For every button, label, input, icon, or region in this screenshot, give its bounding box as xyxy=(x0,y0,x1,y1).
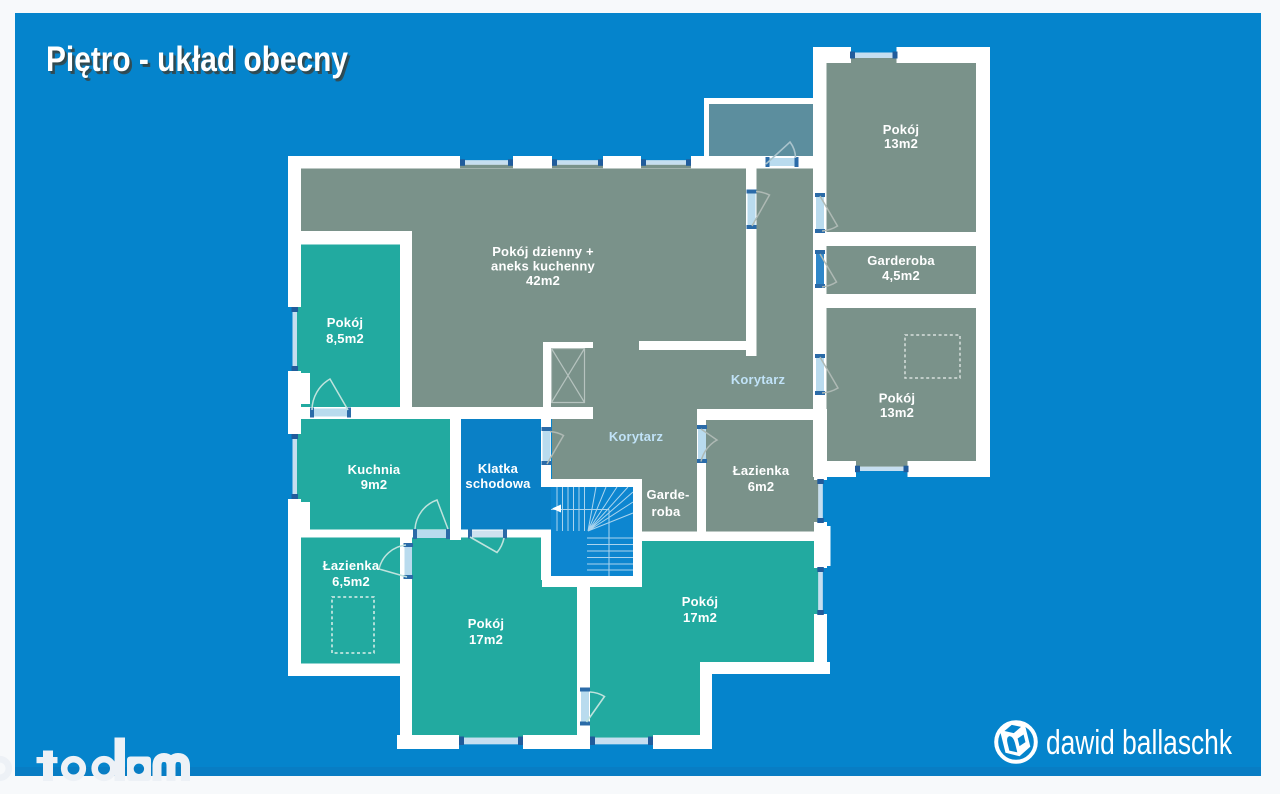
svg-text:schodowa: schodowa xyxy=(465,476,531,491)
svg-text:Pokój: Pokój xyxy=(468,616,504,631)
svg-text:8,5m2: 8,5m2 xyxy=(326,331,364,346)
svg-text:9m2: 9m2 xyxy=(361,477,388,492)
svg-text:13m2: 13m2 xyxy=(884,136,918,151)
svg-text:Łazienka: Łazienka xyxy=(733,463,790,478)
svg-text:aneks kuchenny: aneks kuchenny xyxy=(491,259,596,274)
svg-text:dawid ballaschk: dawid ballaschk xyxy=(1046,724,1233,762)
svg-text:roba: roba xyxy=(652,504,682,519)
svg-text:Piętro - układ obecny: Piętro - układ obecny xyxy=(46,40,348,79)
svg-text:17m2: 17m2 xyxy=(469,632,503,647)
svg-text:Garde-: Garde- xyxy=(646,487,689,502)
svg-text:Pokój: Pokój xyxy=(682,594,718,609)
svg-text:Garderoba: Garderoba xyxy=(867,253,935,268)
svg-text:Korytarz: Korytarz xyxy=(609,429,664,444)
svg-text:Pokój dzienny +: Pokój dzienny + xyxy=(492,244,594,259)
svg-text:17m2: 17m2 xyxy=(683,610,717,625)
svg-text:Korytarz: Korytarz xyxy=(731,372,786,387)
svg-text:Klatka: Klatka xyxy=(478,461,519,476)
svg-text:Pokój: Pokój xyxy=(327,315,363,330)
svg-text:Kuchnia: Kuchnia xyxy=(348,462,401,477)
svg-text:4,5m2: 4,5m2 xyxy=(882,268,920,283)
svg-text:13m2: 13m2 xyxy=(880,405,914,420)
svg-text:Pokój: Pokój xyxy=(883,122,919,137)
svg-text:42m2: 42m2 xyxy=(526,273,560,288)
svg-text:Łazienka: Łazienka xyxy=(323,558,380,573)
svg-text:6m2: 6m2 xyxy=(748,479,775,494)
svg-text:Pokój: Pokój xyxy=(879,391,915,406)
svg-text:6,5m2: 6,5m2 xyxy=(332,574,370,589)
